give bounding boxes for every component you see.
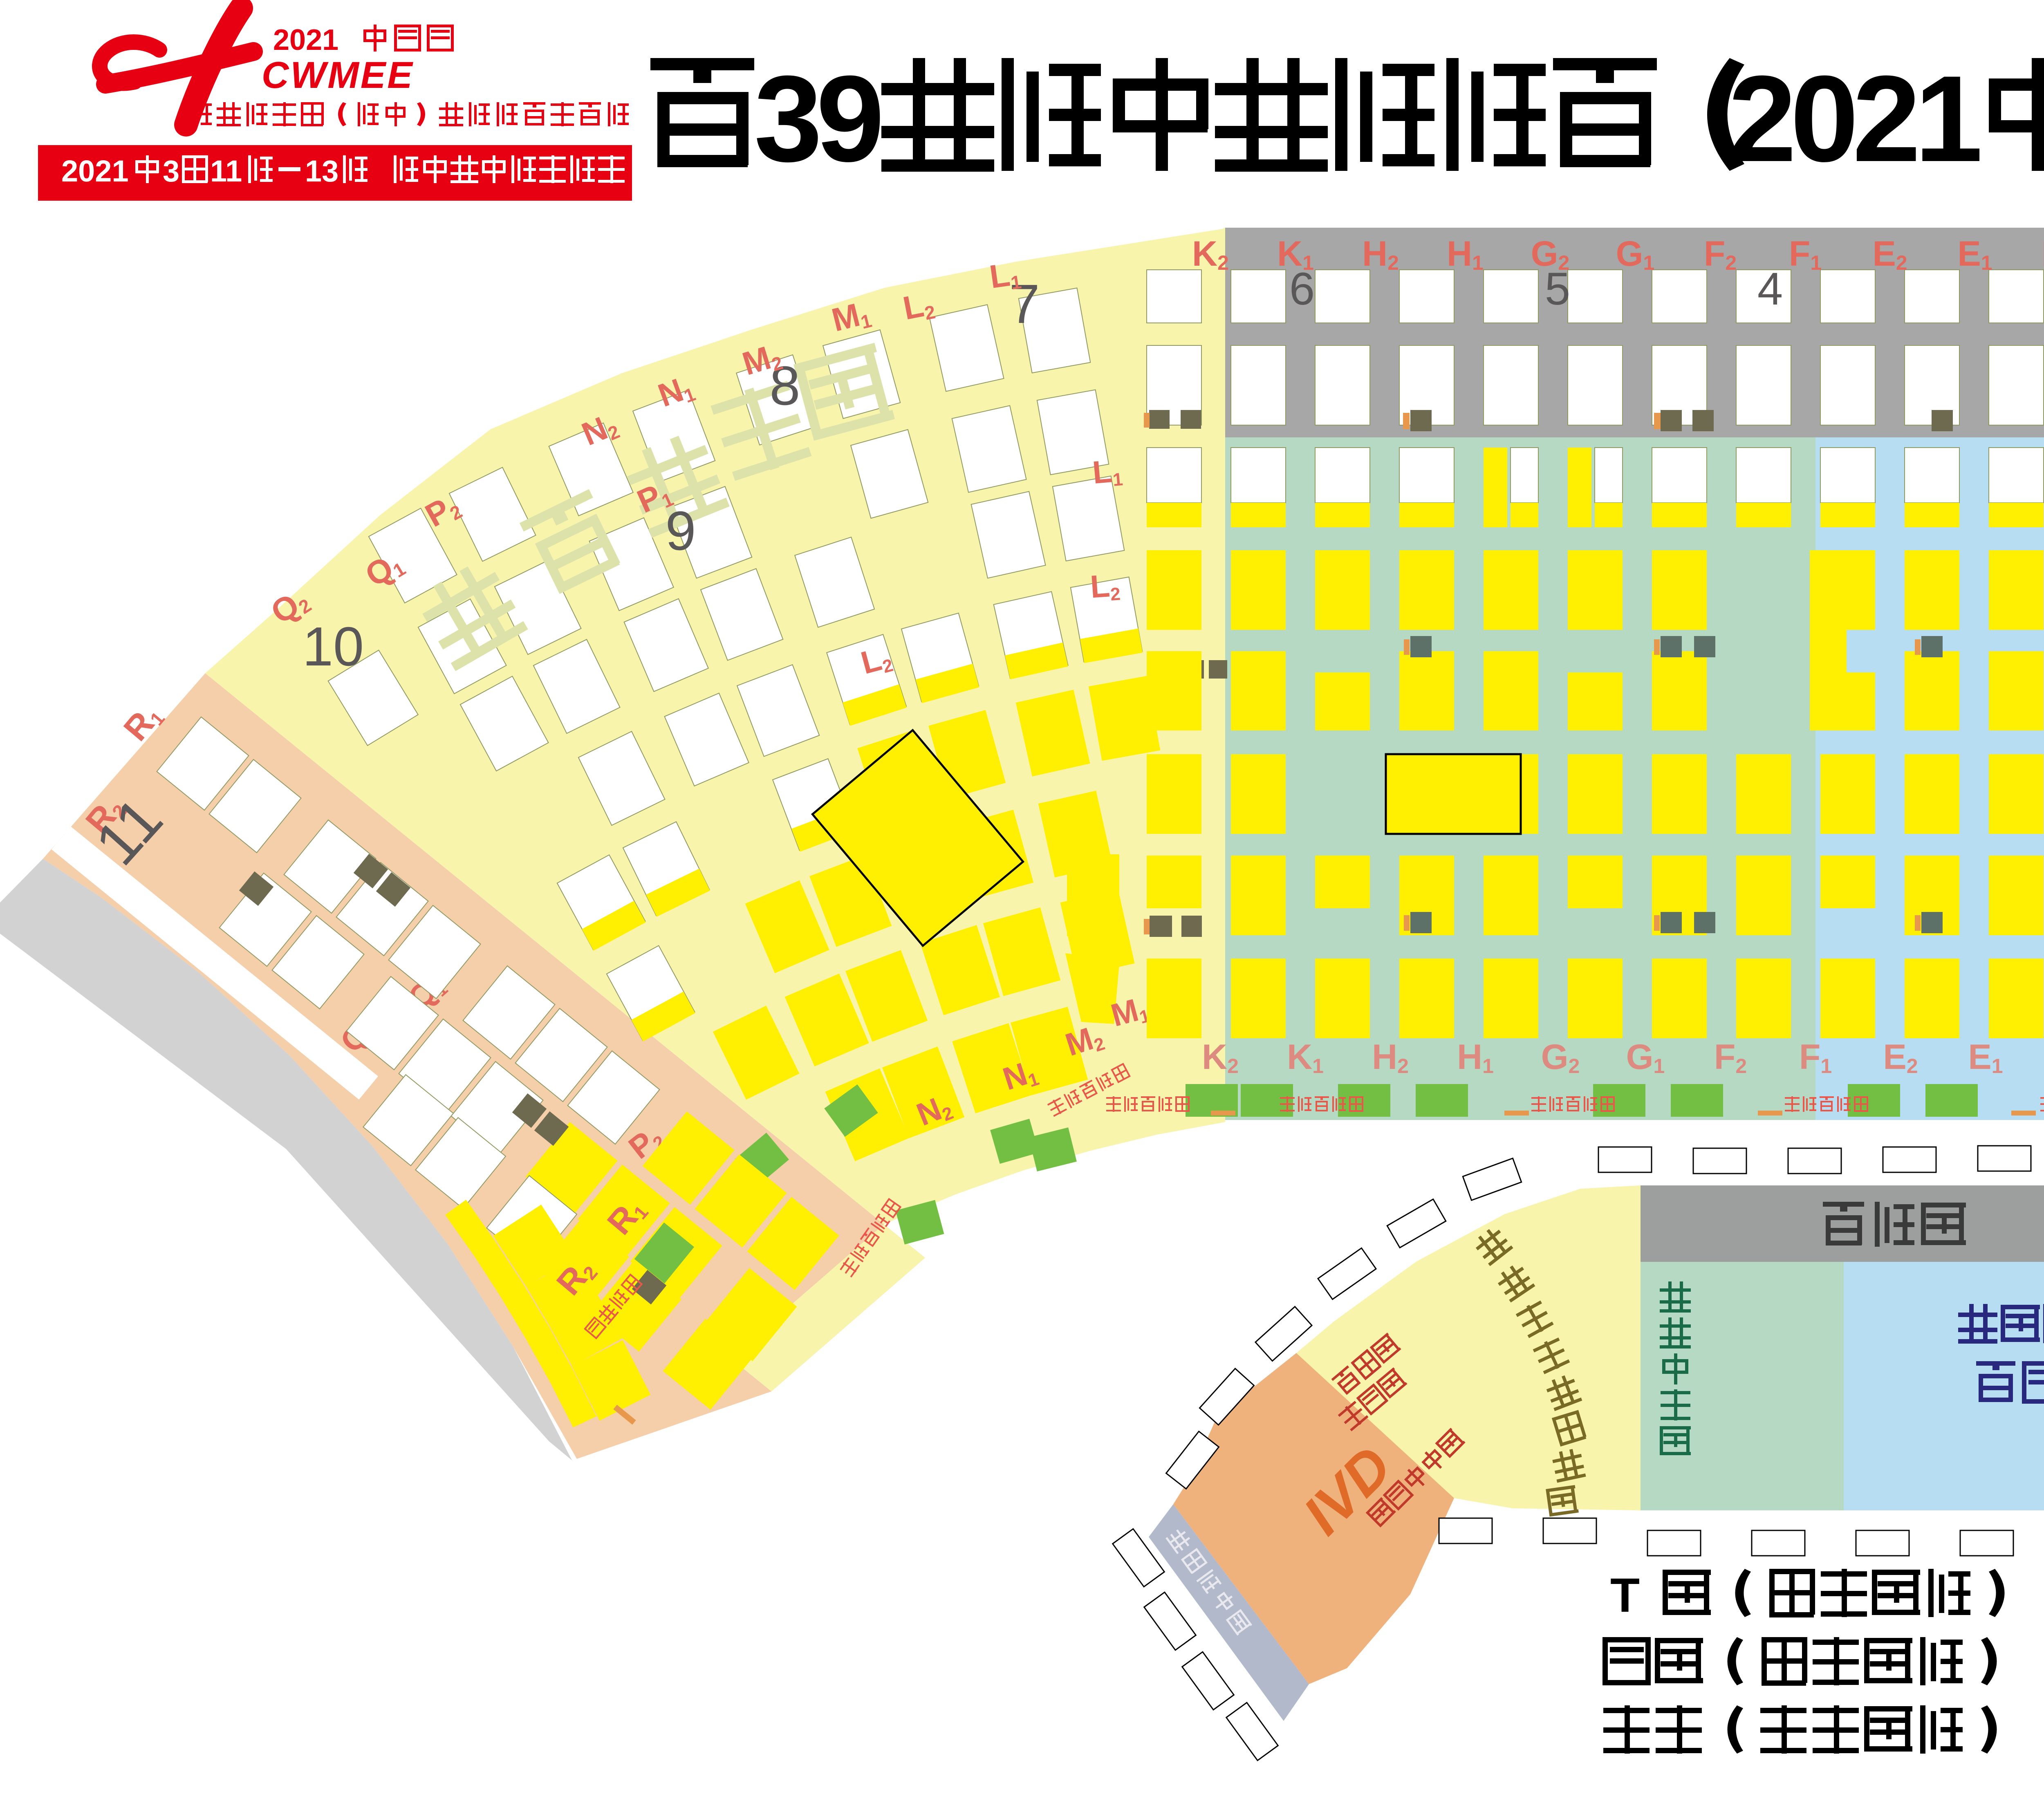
svg-text:3: 3 — [754, 50, 823, 187]
svg-text:9: 9 — [816, 50, 885, 187]
svg-text:2: 2 — [1853, 50, 1921, 187]
svg-text:1: 1 — [1915, 50, 1983, 187]
svg-text:2: 2 — [1728, 50, 1797, 187]
svg-text:0: 0 — [1791, 50, 1859, 187]
svg-text:11: 11 — [210, 154, 242, 188]
svg-text:2021: 2021 — [273, 24, 338, 56]
svg-text:13: 13 — [305, 154, 338, 188]
svg-text:3: 3 — [163, 154, 179, 188]
svg-text:10: 10 — [303, 616, 364, 677]
svg-text:D2: D2 — [2042, 234, 2044, 274]
svg-text:4: 4 — [1757, 263, 1783, 314]
svg-text:2021: 2021 — [61, 154, 129, 188]
svg-text:CWMEE: CWMEE — [262, 54, 414, 96]
svg-text:T: T — [1610, 1568, 1640, 1622]
